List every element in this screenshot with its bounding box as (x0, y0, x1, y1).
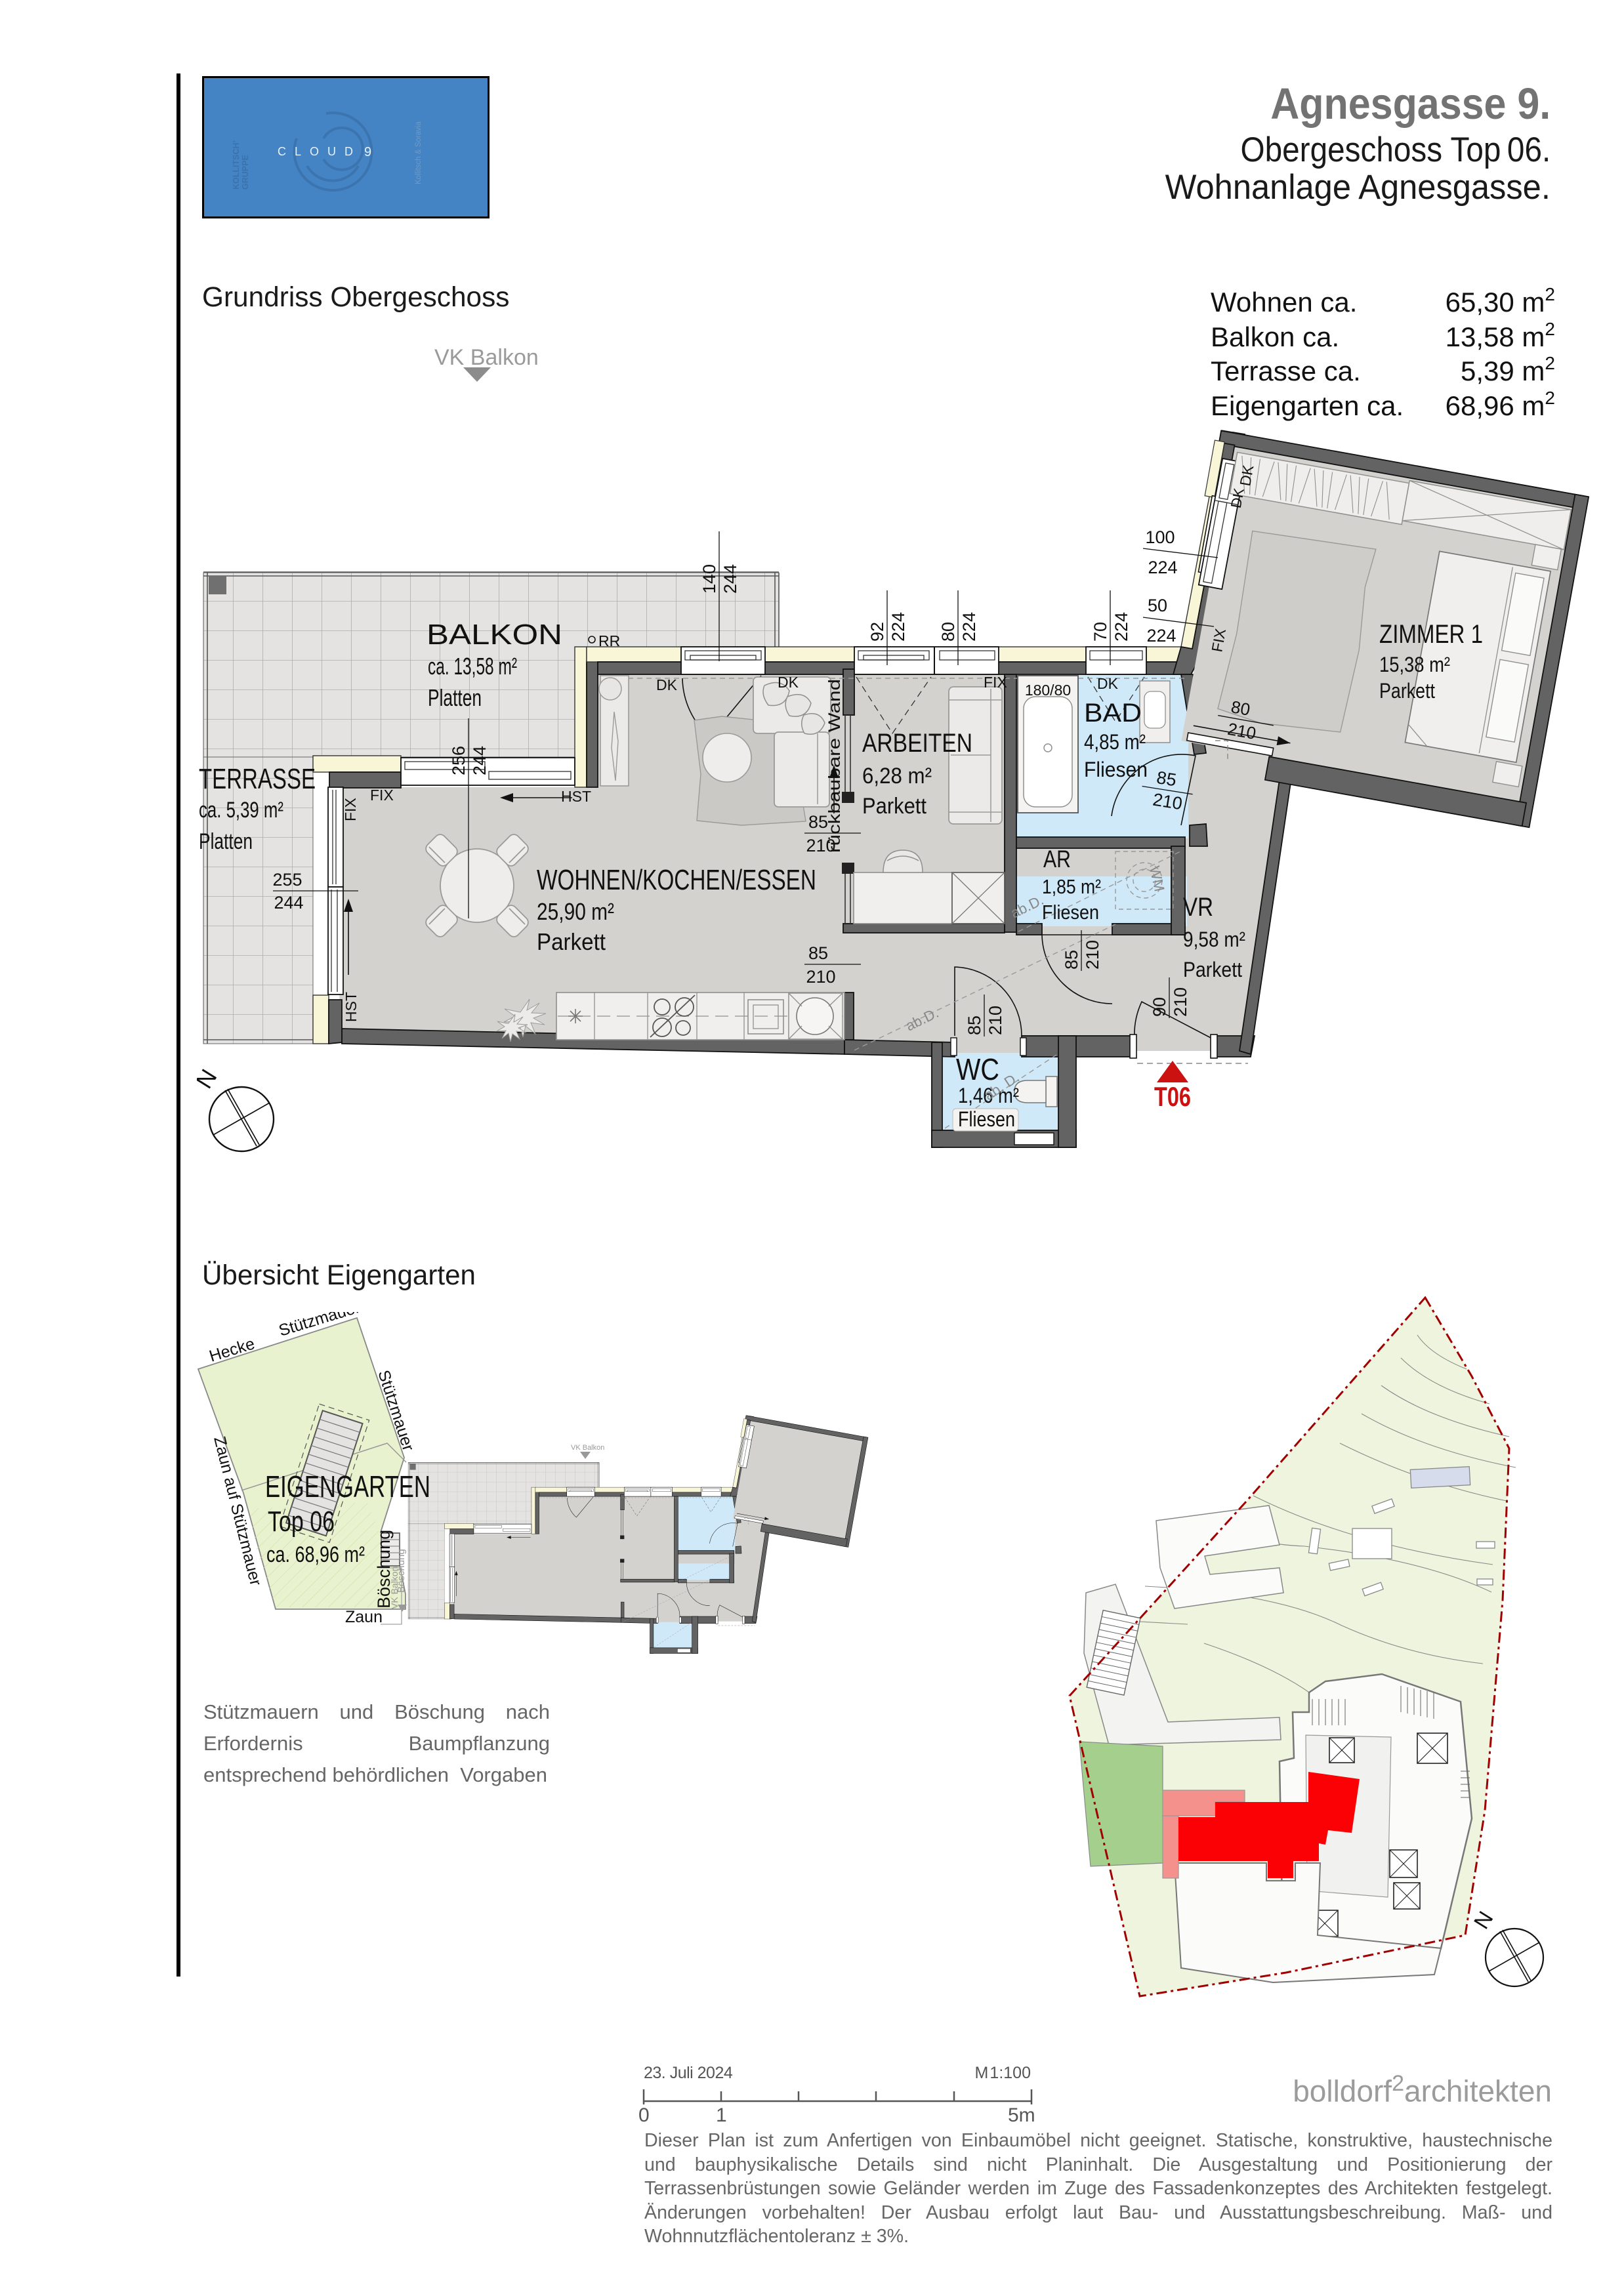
svg-text:WOHNEN/KOCHEN/ESSEN: WOHNEN/KOCHEN/ESSEN (537, 864, 816, 896)
svg-text:DK: DK (656, 676, 678, 693)
svg-text:224: 224 (1112, 612, 1131, 642)
svg-text:KOLLITSCH’: KOLLITSCH’ (232, 140, 241, 190)
svg-text:100: 100 (1145, 527, 1175, 547)
svg-text:VK Balkon: VK Balkon (571, 1444, 604, 1452)
svg-text:50: 50 (1148, 596, 1167, 615)
svg-text:VK Balkon: VK Balkon (434, 345, 539, 370)
svg-text:Parkett: Parkett (537, 928, 606, 955)
svg-text:Platten: Platten (428, 684, 482, 711)
svg-text:DK: DK (778, 674, 799, 691)
svg-text:9,58 m²: 9,58 m² (1183, 928, 1245, 951)
svg-text:256: 256 (449, 746, 468, 775)
svg-text:Top 06: Top 06 (268, 1506, 335, 1538)
svg-text:210: 210 (1171, 987, 1190, 1017)
svg-text:Parkett: Parkett (862, 794, 927, 819)
svg-text:GRUPPE: GRUPPE (241, 155, 250, 190)
svg-text:rückbaubare Wand: rückbaubare Wand (825, 679, 844, 853)
svg-text:BALKON: BALKON (427, 619, 562, 651)
svg-text:180/80: 180/80 (1025, 682, 1071, 699)
svg-text:1,85 m²: 1,85 m² (1042, 875, 1101, 898)
svg-text:EIGENGARTEN: EIGENGARTEN (265, 1469, 430, 1504)
svg-text:Parkett: Parkett (1183, 958, 1242, 981)
svg-text:85: 85 (808, 812, 828, 832)
svg-text:255: 255 (272, 870, 302, 890)
svg-text:AR: AR (1043, 846, 1071, 872)
svg-text:DK: DK (1097, 675, 1119, 692)
svg-text:Fliesen: Fliesen (1084, 758, 1148, 781)
svg-text:6,28 m²: 6,28 m² (862, 764, 932, 789)
svg-text:FIX: FIX (370, 787, 394, 804)
svg-text:210: 210 (806, 836, 835, 855)
svg-text:244: 244 (720, 564, 740, 594)
svg-text:N: N (197, 1064, 222, 1093)
svg-text:80: 80 (938, 622, 958, 642)
svg-text:ca. 13,58 m²: ca. 13,58 m² (428, 653, 517, 680)
svg-text:85: 85 (1062, 950, 1081, 970)
svg-text:4,85 m²: 4,85 m² (1084, 730, 1146, 754)
svg-text:FIX: FIX (342, 798, 359, 821)
svg-text:85: 85 (808, 943, 828, 963)
svg-text:85: 85 (965, 1015, 984, 1035)
svg-text:ZIMMER 1: ZIMMER 1 (1379, 620, 1483, 649)
svg-text:BAD: BAD (1084, 699, 1142, 728)
svg-text:85: 85 (1156, 768, 1178, 790)
svg-text:ca. 5,39 m²: ca. 5,39 m² (199, 798, 283, 823)
svg-text:224: 224 (959, 612, 979, 642)
svg-text:FIX: FIX (984, 674, 1007, 691)
svg-text:25,90 m²: 25,90 m² (537, 898, 614, 925)
svg-text:TERRASSE: TERRASSE (199, 763, 316, 795)
svg-text:Platten: Platten (199, 829, 253, 854)
svg-text:VR: VR (1183, 893, 1213, 922)
svg-text:ca. 68,96 m²: ca. 68,96 m² (266, 1542, 365, 1567)
svg-text:Zaun: Zaun (345, 1608, 383, 1626)
svg-text:15,38 m²: 15,38 m² (1379, 653, 1450, 676)
svg-text:CLOUD: CLOUD (278, 145, 362, 158)
svg-text:140: 140 (699, 564, 719, 594)
svg-text:HST: HST (343, 992, 360, 1022)
svg-text:244: 244 (470, 746, 489, 775)
svg-text:224: 224 (1146, 626, 1176, 646)
svg-text:92: 92 (867, 622, 887, 642)
svg-text:9: 9 (364, 145, 371, 159)
svg-text:T06: T06 (1154, 1081, 1191, 1112)
svg-text:Parkett: Parkett (1379, 679, 1435, 703)
svg-text:210: 210 (806, 967, 835, 987)
svg-text:WC: WC (956, 1052, 999, 1086)
svg-text:210: 210 (1083, 940, 1102, 970)
svg-text:210: 210 (986, 1006, 1005, 1035)
svg-text:244: 244 (274, 893, 303, 912)
svg-text:Fliesen: Fliesen (958, 1107, 1015, 1131)
svg-text:Fliesen: Fliesen (1042, 901, 1099, 924)
svg-text:VK Balkon: VK Balkon (389, 1567, 400, 1609)
svg-text:N: N (1469, 1907, 1498, 1933)
svg-text:70: 70 (1091, 622, 1110, 642)
svg-text:ARBEITEN: ARBEITEN (862, 729, 972, 758)
svg-text:RR: RR (598, 632, 620, 649)
svg-text:224: 224 (1148, 558, 1177, 577)
svg-text:224: 224 (888, 612, 908, 642)
svg-text:90: 90 (1150, 997, 1169, 1017)
svg-text:80: 80 (1230, 697, 1252, 720)
svg-text:Kollitsch & Soravia: Kollitsch & Soravia (415, 121, 423, 184)
svg-text:HST: HST (561, 788, 591, 805)
